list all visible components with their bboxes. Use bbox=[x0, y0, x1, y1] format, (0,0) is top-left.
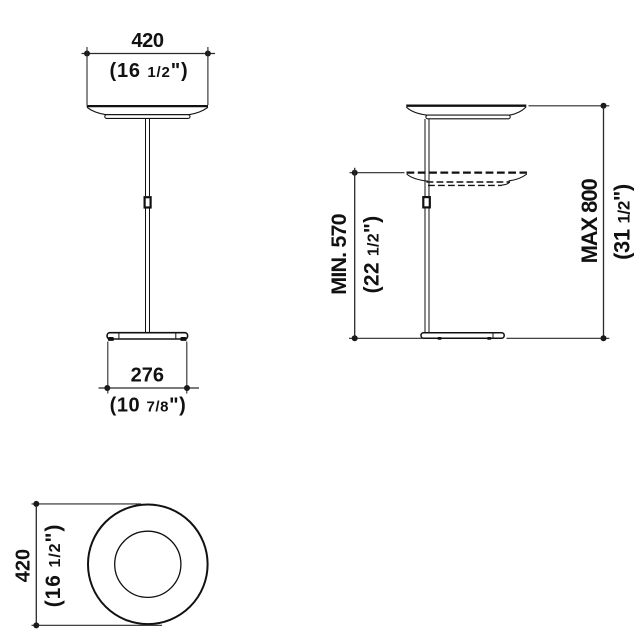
svg-text:MAX 800: MAX 800 bbox=[577, 179, 602, 264]
svg-text:(10 7/8"): (10 7/8") bbox=[110, 394, 187, 416]
svg-text:420: 420 bbox=[131, 30, 163, 52]
svg-text:420: 420 bbox=[12, 549, 34, 582]
svg-text:(22 1/2"): (22 1/2") bbox=[360, 216, 383, 294]
svg-text:(16 1/2"): (16 1/2") bbox=[42, 524, 65, 608]
svg-text:MIN. 570: MIN. 570 bbox=[327, 213, 351, 294]
svg-text:276: 276 bbox=[131, 365, 164, 387]
svg-text:(16 1/2"): (16 1/2") bbox=[109, 60, 188, 82]
svg-text:(31 1/2"): (31 1/2") bbox=[609, 184, 634, 260]
